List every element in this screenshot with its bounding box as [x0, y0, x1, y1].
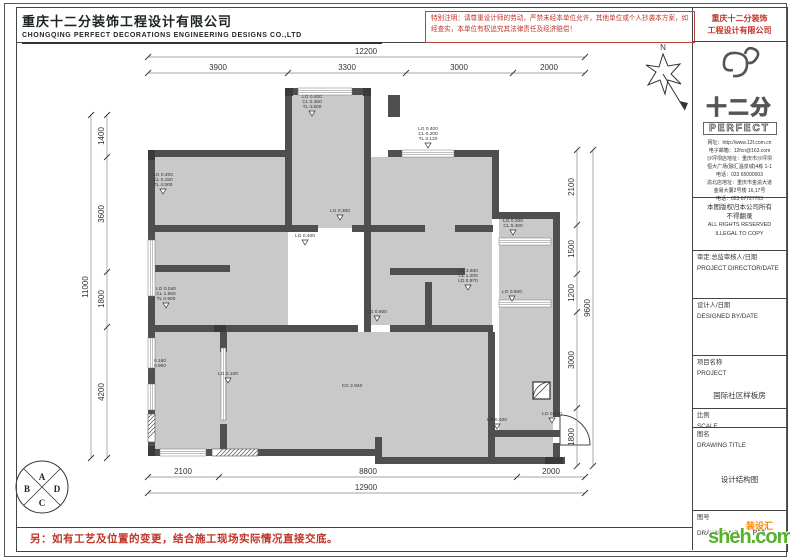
scale-label-cn: 比例	[693, 409, 786, 420]
director-label-en: PROJECT DIRECTOR/DATE	[693, 262, 786, 273]
contact-line: 电话：023 65000003	[693, 171, 786, 179]
designer-label-en: DESIGNED BY/DATE	[693, 310, 786, 321]
titleblock-project-cell: 项目名称 PROJECT 国际社区样板房	[693, 356, 786, 409]
titleblock-scale-cell: 比例 SCALE	[693, 409, 786, 428]
copyright-notice-box: 特别注明：请尊重设计师的劳动，严禁未经本单位允许，其他单位或个人抄袭本方案，如经…	[425, 11, 695, 43]
copyright-notice-text: 特别注明：请尊重设计师的劳动，严禁未经本单位允许，其他单位或个人抄袭本方案，如经…	[431, 15, 688, 33]
company-name-cn: 重庆十二分装饰工程设计有限公司	[22, 11, 422, 30]
director-label-cn: 审定:总监审核人/日期	[693, 251, 786, 262]
copyright-en1: ALL RIGHTS RESERVED	[693, 221, 786, 230]
titleblock-company-cell: 重庆十二分装饰 工程设计有限公司	[693, 7, 786, 42]
contact-line: 金易大厦2号楼 16,17号	[693, 187, 786, 195]
brand-name-cn: 十二分	[693, 91, 786, 120]
drawing-sheet: 1220039003300300020002100880020001290011…	[0, 0, 790, 559]
copyright-cn2: 不得翻录	[693, 212, 786, 221]
contact-info: 网址：http://www.12f.com.cn 电子邮箱：12fcn@163.…	[693, 139, 786, 203]
copyright-cn1: 本图版权归本公司所有	[693, 203, 786, 212]
company-name-en: CHONGQING PERFECT DECORATIONS ENGINEERIN…	[22, 32, 382, 44]
designer-label-cn: 设计人/日期	[693, 299, 786, 310]
contact-line: 网址：http://www.12f.com.cn	[693, 139, 786, 147]
contact-line: 沙坪坝店地址：重庆市沙坪坝	[693, 155, 786, 163]
drawing-title-label-cn: 图名	[693, 428, 786, 439]
sheet-inner-border	[16, 7, 788, 552]
drawing-title-value: 设计结构图	[693, 474, 786, 485]
contact-line: 恒大广场(融汇温泉城)4栋 1-1	[693, 163, 786, 171]
watermark: 装设汇 sheh.com	[708, 517, 790, 559]
project-label-cn: 项目名称	[693, 356, 786, 367]
titleblock-designer-cell: 设计人/日期 DESIGNED BY/DATE	[693, 299, 786, 356]
titleblock-director-cell: 审定:总监审核人/日期 PROJECT DIRECTOR/DATE	[693, 251, 786, 299]
titleblock-company-line1: 重庆十二分装饰	[693, 13, 786, 25]
titleblock-copyright-cell: 本图版权归本公司所有 不得翻录 ALL RIGHTS RESERVED ILLE…	[693, 198, 786, 251]
project-label-en: PROJECT	[693, 367, 786, 378]
footer-note-text: 另：如有工艺及位置的变更，结合施工现场实际情况直接交底。	[30, 531, 338, 546]
contact-line: 电子邮箱：12fcn@163.com	[693, 147, 786, 155]
titleblock-logo-cell: 十二分 PERFECT 网址：http://www.12f.com.cn 电子邮…	[693, 42, 786, 198]
brand-logo-glyph	[693, 42, 786, 86]
titleblock-drawing-title-cell: 图名 DRAWING TITLE 设计结构图	[693, 428, 786, 511]
contact-line: 渝北店地址：重庆市金渝大道	[693, 179, 786, 187]
titleblock-company-line2: 工程设计有限公司	[693, 25, 786, 37]
project-name: 国际社区样板房	[693, 390, 786, 401]
watermark-domain: sheh.com	[708, 526, 790, 549]
drawing-title-label-en: DRAWING TITLE	[693, 439, 786, 450]
company-header: 重庆十二分装饰工程设计有限公司 CHONGQING PERFECT DECORA…	[22, 11, 422, 44]
brand-name-en: PERFECT	[703, 122, 777, 135]
copyright-en2: ILLEGAL TO COPY	[693, 230, 786, 239]
